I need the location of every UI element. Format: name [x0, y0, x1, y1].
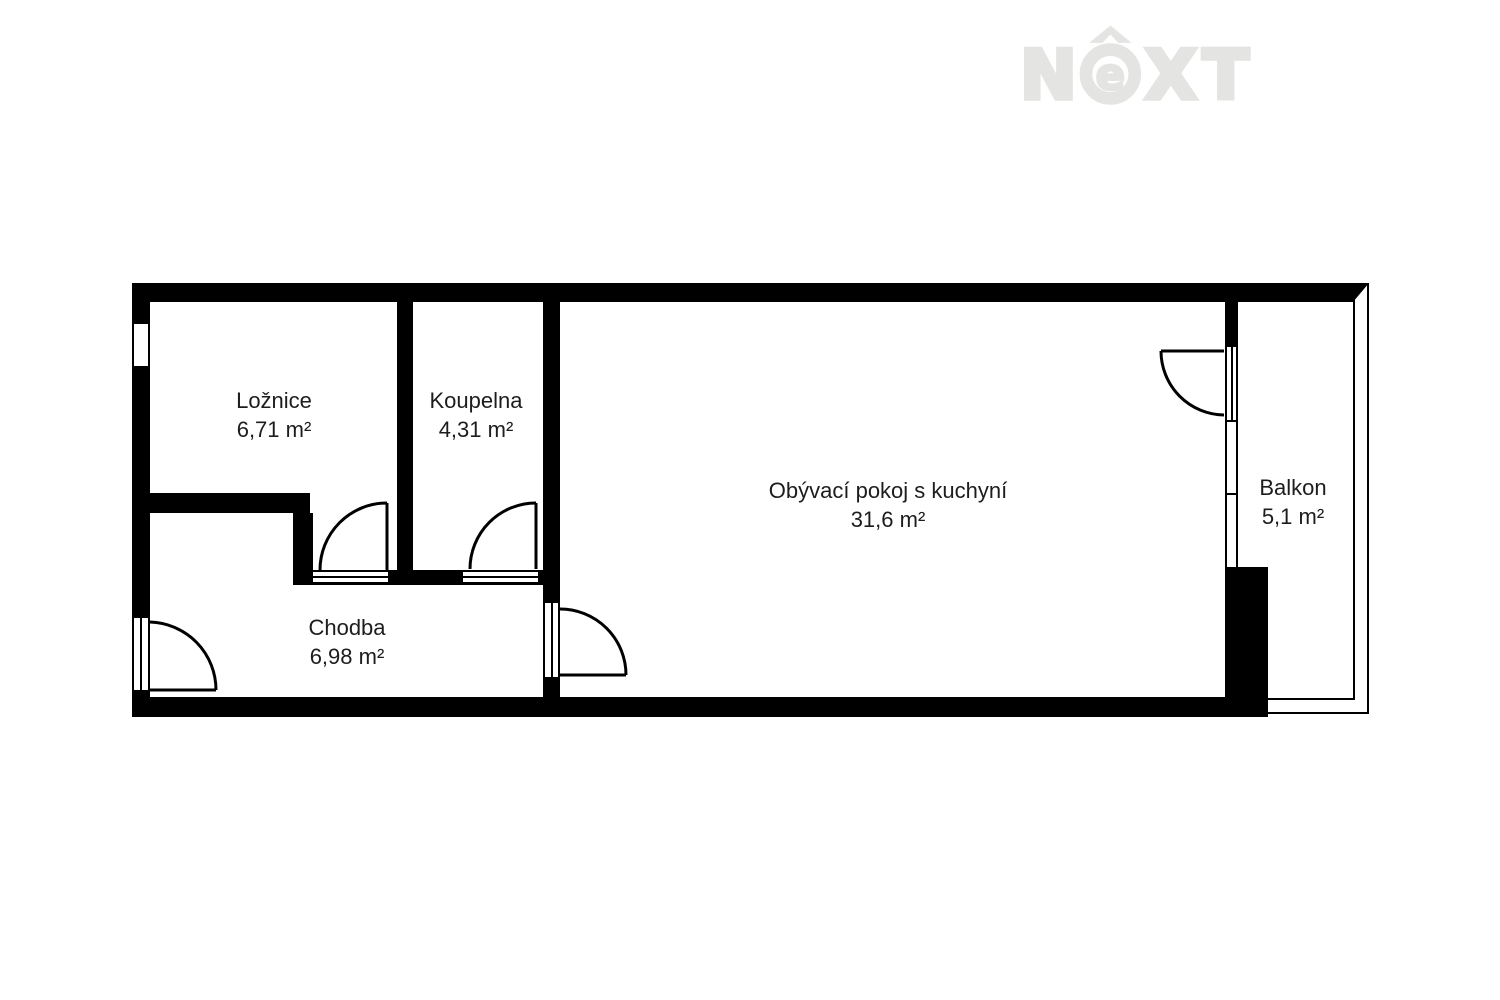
room-label-balkon: Balkon 5,1 m²: [1259, 473, 1326, 531]
wall-balkon-upper: [1225, 283, 1238, 347]
obyvaci-door-threshold: [543, 603, 560, 677]
railing-right-inner: [1353, 298, 1355, 700]
logo-letter-t: T: [1203, 35, 1249, 114]
railing-bottom-inner: [1268, 698, 1355, 700]
floor-plan: Ložnice 6,71 m² Koupelna 4,31 m² Obývací…: [0, 0, 1500, 1000]
room-name: Chodba: [308, 613, 385, 642]
wall-left-upper: [132, 283, 150, 322]
wall-koupelna-obyvaci: [543, 283, 560, 603]
room-name: Koupelna: [430, 386, 523, 415]
threshold-line: [551, 603, 553, 677]
wall-chodba-step: [293, 513, 313, 585]
wall-chodba-right-lower: [543, 677, 560, 697]
room-area: 31,6 m²: [769, 505, 1007, 534]
loznice-door-threshold: [313, 570, 388, 585]
room-name: Balkon: [1259, 473, 1326, 502]
room-area: 6,71 m²: [236, 415, 312, 444]
room-label-obyvaci-pokoj: Obývací pokoj s kuchyní 31,6 m²: [769, 476, 1007, 534]
threshold-line: [313, 576, 388, 578]
logo-caret-icon: [1091, 26, 1131, 42]
room-area: 4,31 m²: [430, 415, 523, 444]
wall-balkon-block: [1225, 567, 1268, 713]
railing-right-outer: [1367, 283, 1369, 714]
railing-bottom-outer: [1268, 712, 1369, 714]
logo-letter-n: N: [1020, 35, 1077, 114]
room-label-koupelna: Koupelna 4,31 m²: [430, 386, 523, 444]
room-area: 6,98 m²: [308, 642, 385, 671]
room-label-loznice: Ložnice 6,71 m²: [236, 386, 312, 444]
window-balkon: [1225, 420, 1238, 567]
wall-bottom: [132, 697, 1268, 717]
room-area: 5,1 m²: [1259, 502, 1326, 531]
threshold-line: [1231, 347, 1233, 420]
balkon-door-threshold: [1225, 347, 1238, 420]
window-divider: [1227, 493, 1236, 495]
koupelna-door-threshold: [463, 570, 538, 585]
logo-letter-e: e: [1096, 50, 1125, 100]
wall-loznice-south: [132, 493, 310, 513]
wall-loznice-koupelna: [397, 283, 413, 570]
wall-chodba-north-mid: [388, 570, 463, 585]
next-logo: N e X T: [1020, 22, 1255, 117]
room-name: Obývací pokoj s kuchyní: [769, 476, 1007, 505]
threshold-line: [140, 618, 142, 690]
room-name: Ložnice: [236, 386, 312, 415]
wall-top: [132, 283, 1353, 302]
room-label-chodba: Chodba 6,98 m²: [308, 613, 385, 671]
threshold-line: [463, 576, 538, 578]
entrance-door-threshold: [132, 618, 150, 690]
logo-letter-x: X: [1145, 35, 1197, 114]
window-loznice: [132, 322, 150, 368]
